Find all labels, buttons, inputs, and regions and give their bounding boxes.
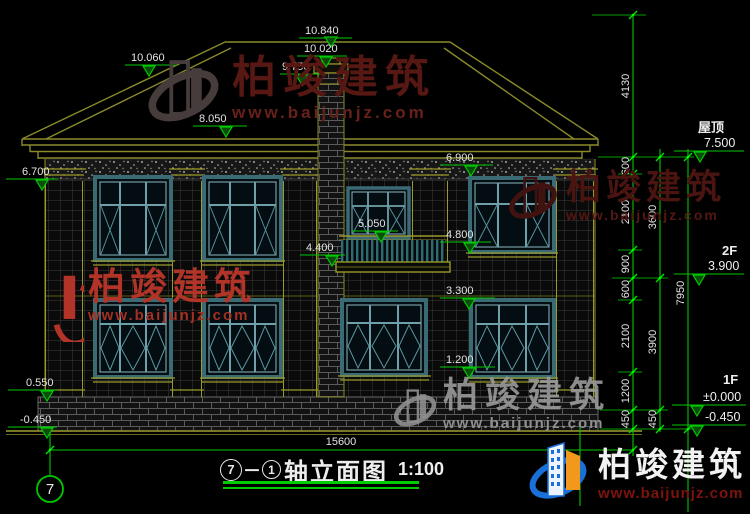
level-roof-value: 7.500 [704,136,735,150]
watermark-bottom: 柏竣建筑 www.baijunjz.com [443,378,611,431]
dim-450-a: 450 [620,410,632,428]
dim-4130: 4130 [620,74,632,98]
watermark-logo-icon [393,378,439,442]
watermark-logo-icon [52,270,84,346]
elev-label-f1-window-head: 3.300 [446,285,474,297]
elev-label-plinth-top: 0.550 [26,377,54,389]
dim-2100-b: 2100 [620,324,632,348]
balcony [336,236,450,272]
cad-elevation-screenshot: 10.840 10.060 10.020 9.750 8.050 6.700 6… [0,0,750,514]
site-logo: 柏竣建筑 www.baijunjz.com [528,438,746,511]
level-roof-label: 屋顶 [698,120,724,135]
title-axis-end-bubble: 1 [262,460,281,479]
site-logo-url: www.baijunjz.com [598,485,746,502]
watermark-brand: 柏竣建筑 [443,378,611,413]
level-1f-value: ±0.000 [703,390,741,404]
dim-3900: 3900 [647,330,659,354]
dim-450-b: 450 [647,410,659,428]
watermark-right: 柏竣建筑 www.baijunjz.com [566,170,726,222]
elev-label-ridge: 10.840 [305,25,339,37]
level-1f-value-below: -0.450 [705,410,740,424]
elev-label-balcony-floor: 4.400 [306,242,334,254]
watermark-left: 柏竣建筑 www.baijunjz.com [88,268,256,323]
level-1f-label: 1F [723,372,738,387]
watermark-url: www.baijunjz.com [88,308,256,323]
watermark-brand: 柏竣建筑 [566,170,726,205]
watermark-url: www.baijunjz.com [232,104,436,121]
balcony-railing [341,240,445,262]
site-logo-icon [528,438,592,511]
window-1f-d [471,300,554,377]
watermark-top: 柏竣建筑 www.baijunjz.com [232,56,436,121]
window-2f-mid [204,177,281,260]
axis-bubble-7-label: 7 [46,481,54,498]
elev-label-ground-left: -0.450 [20,414,51,426]
watermark-url: www.baijunjz.com [443,416,611,431]
dim-7950-total: 7950 [675,281,687,305]
title-axis-start-bubble: 7 [220,459,242,481]
elev-label-balcony-window-sill: 5.050 [358,218,386,230]
title-underline-thick [223,481,419,484]
title-underline-thin [223,487,419,489]
dim-600-b: 600 [620,280,632,298]
dim-width-15600: 15600 [326,436,357,448]
watermark-brand: 柏竣建筑 [88,268,256,305]
elev-label-f2-window-sill: 4.800 [446,229,474,241]
window-2f-left [95,177,171,260]
elev-label-eave-right: 6.900 [446,152,474,164]
elev-label-f1-window-sill: 1.200 [446,354,474,366]
level-2f-value: 3.900 [708,259,739,273]
title-scale: 1:100 [398,459,444,480]
dimension-chains-right: 4130 600 2100 900 600 2100 1200 450 3600… [592,11,694,512]
watermark-logo-icon [508,170,560,230]
level-2f-label: 2F [722,243,737,258]
window-1f-c [342,300,426,375]
dim-900: 900 [620,255,632,273]
watermark-logo-icon [146,56,224,130]
watermark-brand: 柏竣建筑 [232,56,436,100]
dim-1200: 1200 [620,379,632,403]
watermark-url: www.baijunjz.com [566,208,726,222]
site-logo-brand: 柏竣建筑 [598,448,746,481]
title-axis-separator: － [243,457,261,483]
elev-label-eave-left: 6.700 [22,166,50,178]
